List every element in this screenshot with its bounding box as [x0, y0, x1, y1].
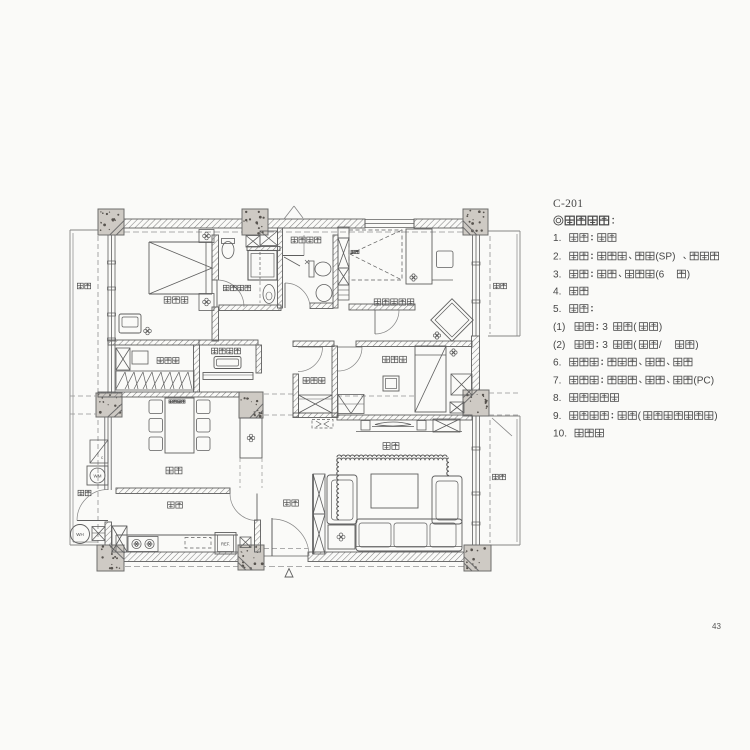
svg-text:3.: 3.: [553, 269, 561, 280]
svg-text:9.: 9.: [553, 411, 561, 422]
svg-text:): ): [695, 340, 698, 351]
svg-text:(SP): (SP): [655, 251, 675, 262]
svg-text:): ): [687, 269, 690, 280]
svg-text:(6: (6: [655, 269, 664, 280]
svg-text:): ): [714, 411, 717, 422]
svg-text:(PC): (PC): [693, 375, 714, 386]
svg-text:(2): (2): [553, 340, 565, 351]
svg-text:WM: WM: [94, 474, 102, 479]
svg-text:43: 43: [712, 622, 721, 631]
svg-text:8.: 8.: [553, 393, 561, 404]
svg-text:3: 3: [602, 322, 608, 333]
svg-text:C-201: C-201: [553, 198, 583, 210]
svg-text:4.: 4.: [553, 286, 561, 297]
svg-text:7.: 7.: [553, 375, 561, 386]
svg-text:6.: 6.: [553, 357, 561, 368]
svg-text:): ): [659, 322, 662, 333]
svg-text:1.: 1.: [553, 233, 561, 244]
svg-text:REF.: REF.: [221, 542, 230, 547]
svg-text:WH: WH: [76, 532, 84, 537]
svg-text:3: 3: [602, 340, 608, 351]
svg-text:/: /: [659, 340, 662, 351]
svg-text:10.: 10.: [553, 428, 567, 439]
svg-text:2.: 2.: [553, 251, 561, 262]
svg-text:5.: 5.: [553, 304, 561, 315]
svg-text:(1): (1): [553, 322, 565, 333]
